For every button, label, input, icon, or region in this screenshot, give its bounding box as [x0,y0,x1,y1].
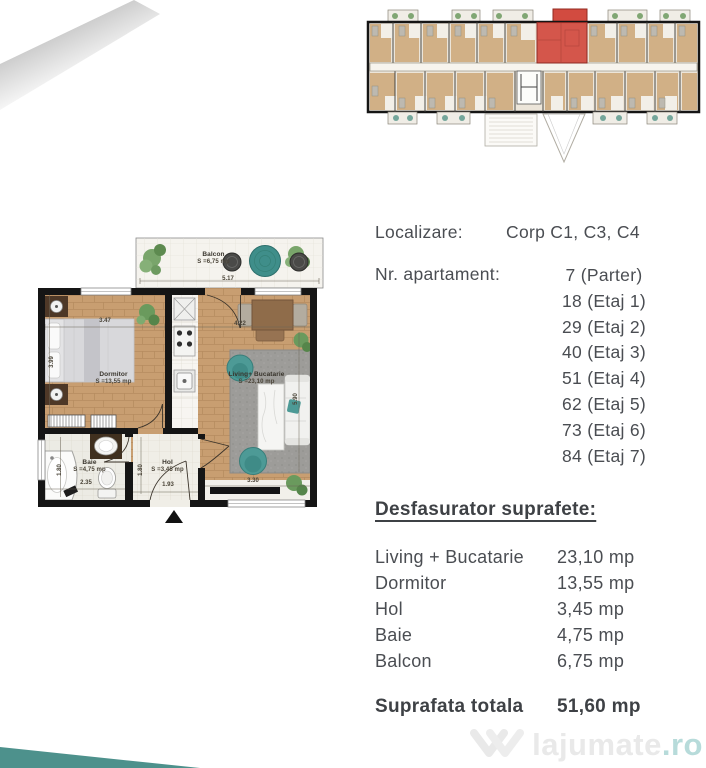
location-value: Corp C1, C3, C4 [506,222,640,242]
total-area-label: Suprafata totala [375,696,557,718]
building-overview-plan [365,8,702,168]
apartment-number-entry: 84 (Etaj 7) [536,444,672,470]
dim-balcon-width: 5.17 [198,274,258,284]
dim-hol-depth: 1.80 [136,440,146,500]
area-row-value: 4,75 mp [557,622,624,648]
building-corridor [370,63,697,71]
corner-decoration-top-left [0,0,160,110]
area-row: Baie 4,75 mp [375,622,634,648]
area-row-label: Dormitor [375,570,557,596]
north-arrow [165,510,183,523]
listing-image: Balcon S =6,75 mp 5.17 Dormitor S =13,55… [0,0,706,768]
building-entrance [485,114,585,162]
area-row-value: 23,10 mp [557,544,634,570]
watermark-brand: lajumate [532,727,662,762]
dim-hol-width: 1.93 [138,480,198,490]
dim-living-depth: 5.90 [291,369,301,429]
dim-baie-depth: 1.80 [55,440,65,500]
building-balconies-top [388,9,690,22]
apartment-number-entry: 7 (Parter) [536,263,672,289]
area-row: Hol 3,45 mp [375,596,634,622]
apartment-number-entry: 73 (Etaj 6) [536,418,672,444]
watermark-tld: .ro [662,727,703,762]
area-row: Balcon 6,75 mp [375,648,634,674]
watermark-text: lajumate.ro [532,727,703,763]
area-row: Living + Bucatarie 23,10 mp [375,544,634,570]
area-row-label: Living + Bucatarie [375,544,557,570]
apartment-number-entry: 18 (Etaj 1) [536,289,672,315]
areas-heading: Desfasurator suprafete: [375,499,596,521]
dim-living-width: 4.22 [210,319,270,329]
dim-dormitor-depth: 3.99 [47,332,57,392]
apartment-number-entry: 51 (Etaj 4) [536,366,672,392]
area-row-label: Balcon [375,648,557,674]
watermark: lajumate.ro [469,725,703,765]
area-row-label: Baie [375,622,557,648]
apartment-numbers-label: Nr. apartament: [375,264,500,285]
area-row-value: 6,75 mp [557,648,624,674]
building-stairwell [517,71,541,104]
highlighted-unit-balcony [553,9,587,22]
stove [174,326,195,356]
coffee-table [258,384,284,450]
area-row-value: 13,55 mp [557,570,634,596]
location-label: Localizare: [375,222,506,243]
room-label-dormitor: Dormitor S =13,55 mp [76,371,151,387]
room-label-living: Living+ Bucatarie S =23,10 mp [219,371,294,387]
dim-living-bottom-width: 3.30 [223,476,283,486]
highlighted-unit [537,23,587,64]
area-row-value: 3,45 mp [557,596,624,622]
location-row: Localizare:Corp C1, C3, C4 [375,222,640,243]
corner-decoration-bottom-left [0,747,200,768]
radiators [48,415,116,428]
area-row-label: Hol [375,596,557,622]
apartment-number-entry: 29 (Etaj 2) [536,315,672,341]
apartment-floor-plan: Balcon S =6,75 mp 5.17 Dormitor S =13,55… [28,232,328,527]
total-area-value: 51,60 mp [557,696,641,718]
apartment-numbers-list: 7 (Parter) 18 (Etaj 1) 29 (Etaj 2) 40 (E… [536,263,672,469]
area-row: Dormitor 13,55 mp [375,570,634,596]
lajumate-logo-icon [469,725,525,765]
tv-console [210,487,280,494]
dim-baie-width: 2.35 [56,478,116,488]
apartment-number-entry: 62 (Etaj 5) [536,392,672,418]
total-area-row: Suprafata totala 51,60 mp [375,696,641,718]
room-label-balcon: Balcon S =6,75 mp [176,251,251,267]
kitchen-units [172,298,198,398]
balcony-table [250,246,281,277]
areas-table: Living + Bucatarie 23,10 mp Dormitor 13,… [375,544,634,674]
apartment-number-entry: 40 (Etaj 3) [536,340,672,366]
dim-dormitor-width: 3.47 [75,316,135,326]
